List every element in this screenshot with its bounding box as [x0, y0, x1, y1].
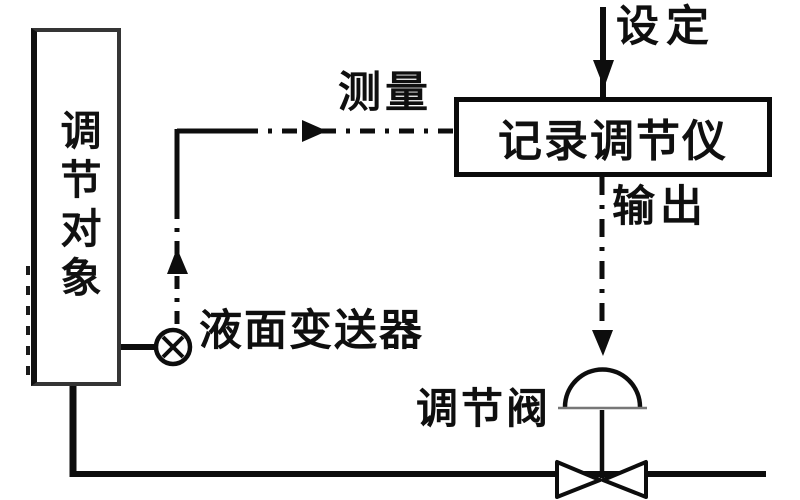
valve-body-right-triangle-icon	[603, 462, 646, 497]
controller-box: 记录调节仪	[454, 97, 772, 177]
measurement-arrowhead-up-icon	[167, 248, 188, 274]
control-valve-label: 调节阀	[416, 388, 551, 430]
output-arrowhead-icon	[592, 330, 613, 356]
transmitter-label: 液面变送器	[199, 310, 424, 353]
controlled-object-box: 调节对象	[31, 28, 121, 386]
controller-label: 记录调节仪	[498, 105, 728, 169]
valve-body-left-triangle-icon	[557, 462, 600, 497]
controlled-object-label: 调节对象	[47, 109, 107, 305]
measurement-arrowhead-right-icon	[302, 120, 327, 142]
measurement-label: 测量	[338, 72, 432, 115]
diagram-canvas: 调节对象 记录调节仪 设定 测量 输出 液面变送器 调节阀	[0, 0, 800, 500]
setpoint-label: 设定	[616, 6, 716, 49]
setpoint-arrowhead-icon	[593, 60, 614, 88]
output-label: 输出	[612, 186, 708, 229]
valve-actuator-dome-icon	[565, 370, 640, 408]
